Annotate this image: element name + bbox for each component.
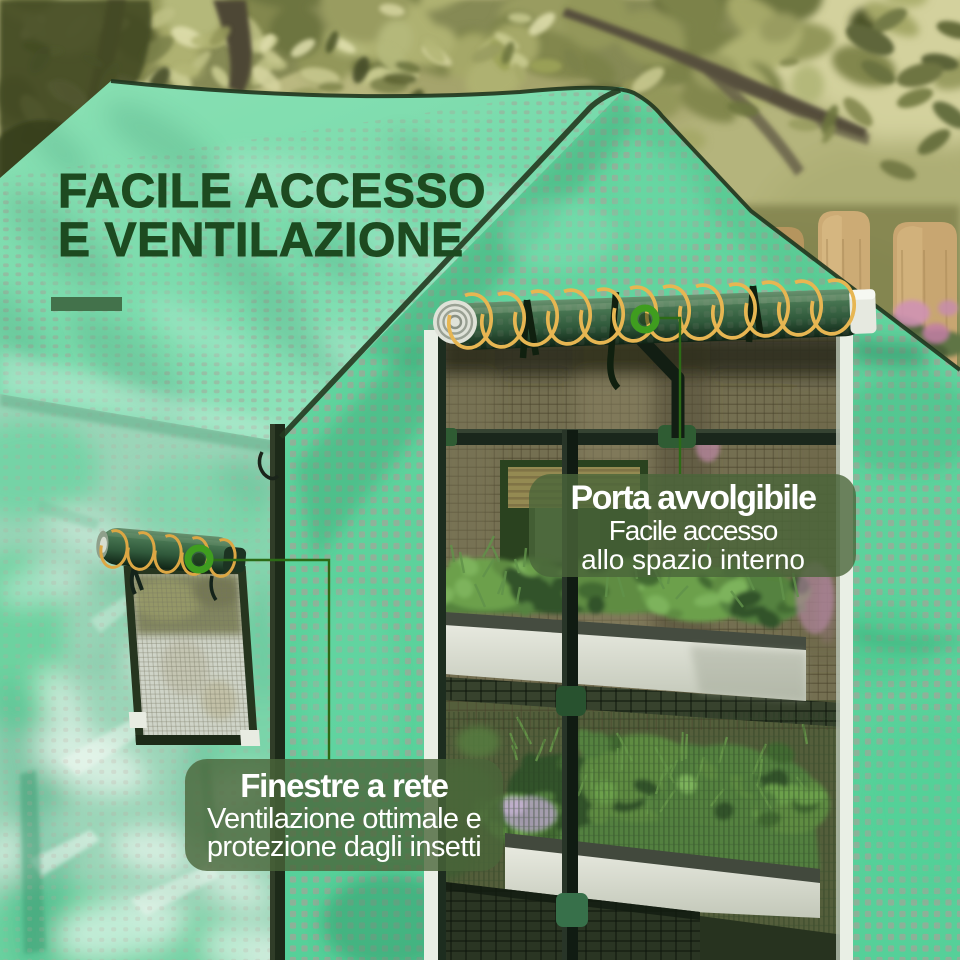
svg-text:Porta avvolgibile: Porta avvolgibile [571,479,817,517]
svg-text:Facile accesso: Facile accesso [609,515,778,546]
svg-text:Finestre a rete: Finestre a rete [240,767,448,804]
svg-text:allo spazio interno: allo spazio interno [581,544,805,575]
svg-text:FACILE ACCESSO: FACILE ACCESSO [58,165,486,218]
svg-text:protezione dagli insetti: protezione dagli insetti [207,831,481,863]
svg-text:E VENTILAZIONE: E VENTILAZIONE [58,214,464,267]
